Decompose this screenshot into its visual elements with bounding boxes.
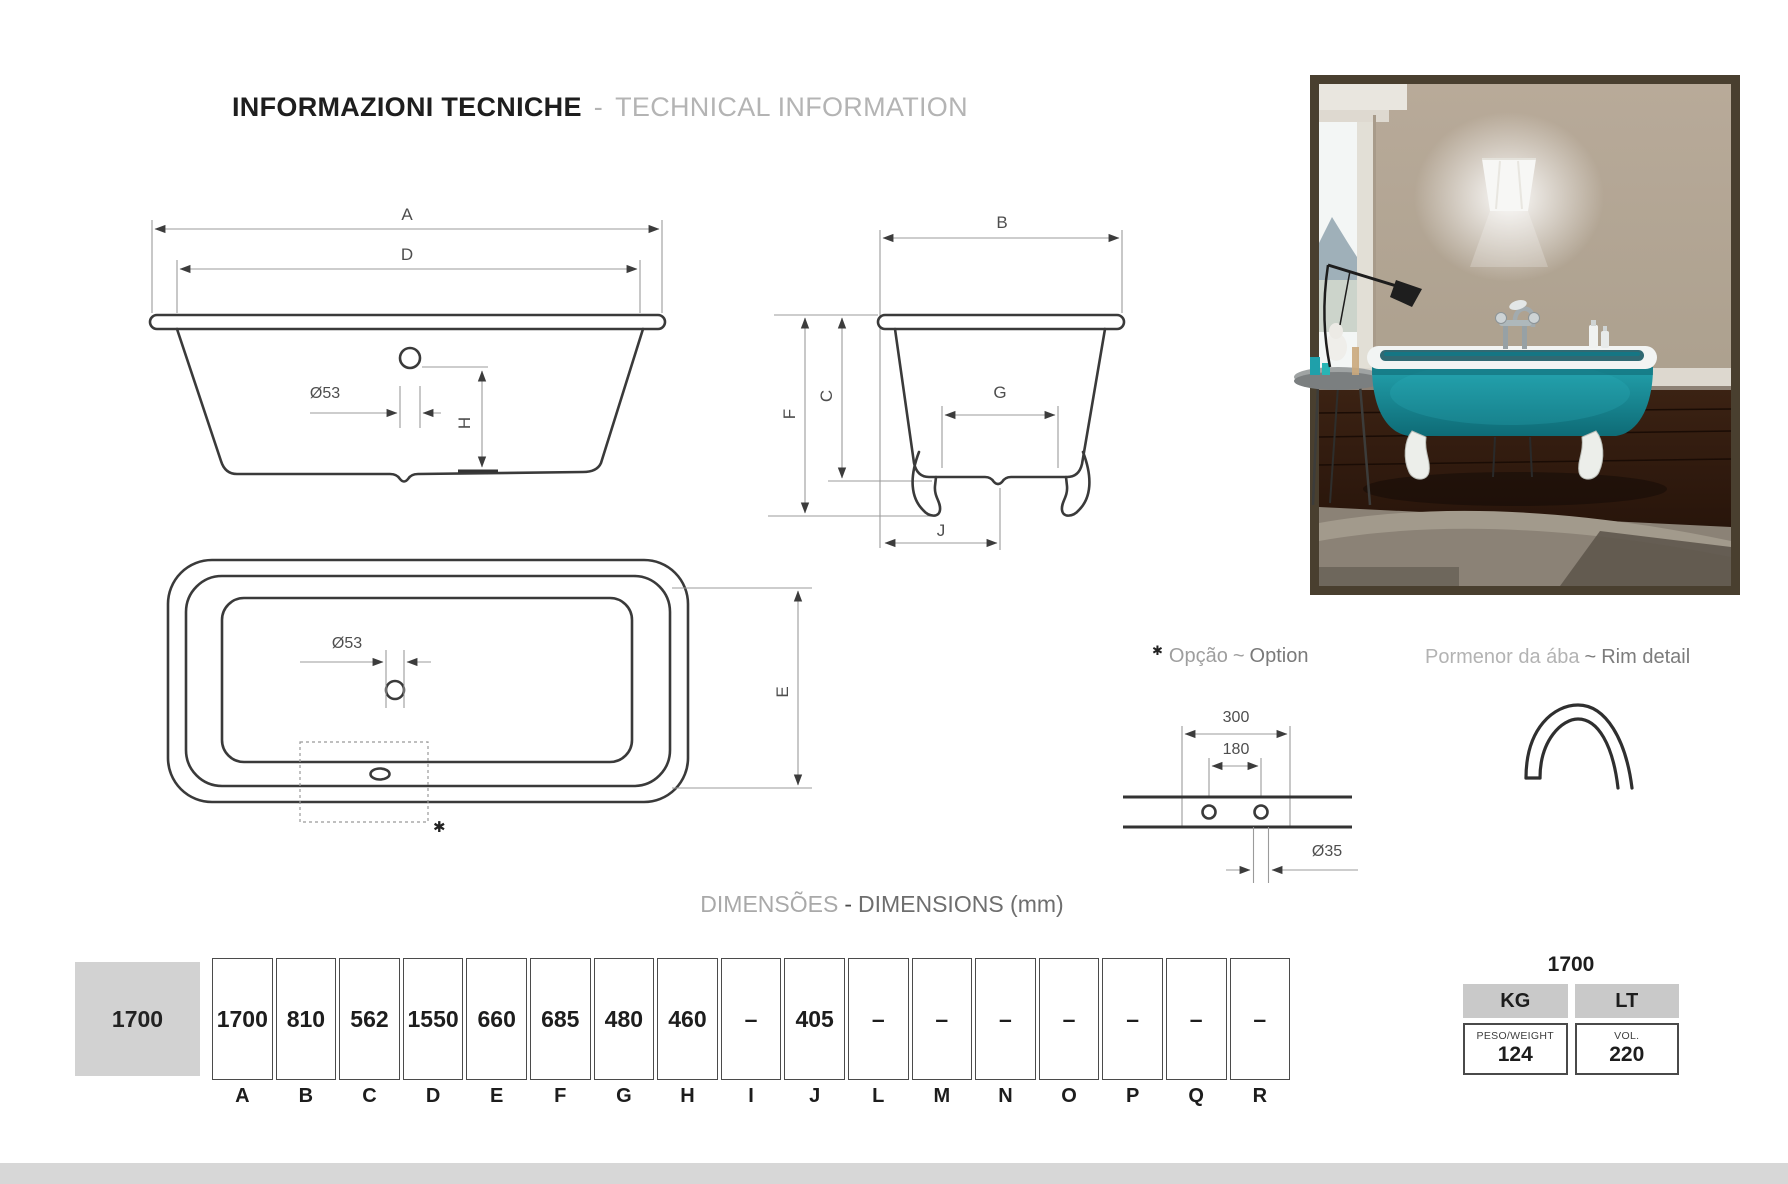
- option-dim-inner: 180: [1223, 741, 1250, 758]
- option-label-separator: ~: [1233, 645, 1245, 667]
- dim-letter: O: [1039, 1083, 1100, 1109]
- dim-value: –: [721, 958, 782, 1080]
- option-label-en: Option: [1250, 645, 1309, 667]
- catalog-page: INFORMAZIONI TECNICHE-TECHNICAL INFORMAT…: [0, 0, 1788, 1184]
- tub-rim-end: [878, 315, 1124, 329]
- dim-value: 810: [276, 958, 337, 1080]
- dim-value: 1700: [212, 958, 273, 1080]
- page-title-italian: INFORMAZIONI TECNICHE: [232, 92, 582, 122]
- page-title-separator: -: [594, 92, 603, 122]
- clawfoot-left: [913, 452, 941, 516]
- weight-table-headers: KG LT: [1463, 984, 1679, 1018]
- end-view-drawing: B F C G J: [690, 190, 1150, 565]
- rim-detail-separator: ~: [1585, 646, 1597, 668]
- option-detail-drawing: 300 180 Ø35: [1100, 700, 1400, 895]
- dim-label-g: G: [993, 383, 1006, 402]
- clawfoot-right: [1062, 452, 1090, 516]
- weight-volume-table: 1700 KG LT PESO/WEIGHT 124 VOL. 220: [1463, 953, 1679, 1075]
- photo-foot-right: [1579, 431, 1603, 479]
- page-title: INFORMAZIONI TECNICHE-TECHNICAL INFORMAT…: [232, 92, 968, 123]
- dim-letter: D: [403, 1083, 464, 1109]
- dim-value: 1550: [403, 958, 464, 1080]
- dim-letter: G: [594, 1083, 655, 1109]
- dim-letter: J: [784, 1083, 845, 1109]
- dim-value: 480: [594, 958, 655, 1080]
- tap-hole-right: [1255, 806, 1268, 819]
- dim-letter: E: [466, 1083, 527, 1109]
- dim-letter: C: [339, 1083, 400, 1109]
- volume-value: 220: [1577, 1043, 1678, 1067]
- dim-column-m: –M: [912, 958, 973, 1109]
- drain-diameter-label-plan: Ø53: [332, 635, 362, 652]
- dim-letter: I: [721, 1083, 782, 1109]
- dimensions-title-pt: DIMENSÕES: [700, 891, 838, 917]
- model-size-box: 1700: [75, 962, 200, 1076]
- photo-wall-sconce: [1414, 112, 1604, 282]
- volume-label: VOL.: [1577, 1030, 1678, 1042]
- weight-box: PESO/WEIGHT 124: [1463, 1023, 1568, 1075]
- dim-letter: L: [848, 1083, 909, 1109]
- dim-letter: R: [1230, 1083, 1291, 1109]
- dim-column-f: 685F: [530, 958, 591, 1109]
- drain-hole-plan: [386, 681, 404, 699]
- dim-column-b: 810B: [276, 958, 337, 1109]
- lt-header: LT: [1575, 984, 1680, 1018]
- dim-column-i: –I: [721, 958, 782, 1109]
- dim-value: 562: [339, 958, 400, 1080]
- tub-basin-plan: [222, 598, 632, 762]
- page-bottom-strip: [0, 1163, 1788, 1184]
- kg-header: KG: [1463, 984, 1568, 1018]
- dim-letter: Q: [1166, 1083, 1227, 1109]
- dim-label-c: C: [817, 390, 836, 402]
- weight-value: 124: [1465, 1043, 1566, 1067]
- top-view-drawing: Ø53 ✱ E: [150, 550, 840, 835]
- dim-label-e: E: [773, 686, 792, 697]
- dim-letter: F: [530, 1083, 591, 1109]
- option-label-pt: Opção: [1169, 645, 1228, 667]
- dim-column-d: 1550D: [403, 958, 464, 1109]
- rim-detail-label-pt: Pormenor da ába: [1425, 646, 1580, 668]
- dim-column-o: –O: [1039, 958, 1100, 1109]
- option-label: ✱Opção~Option: [1152, 645, 1308, 668]
- volume-box: VOL. 220: [1575, 1023, 1680, 1075]
- rim-detail-label: Pormenor da ába~Rim detail: [1425, 646, 1690, 669]
- dim-value: 405: [784, 958, 845, 1080]
- dimensions-title-en: DIMENSIONS (mm): [858, 891, 1064, 917]
- dim-value: –: [1166, 958, 1227, 1080]
- dim-letter: A: [212, 1083, 273, 1109]
- tub-rim-profile: [150, 315, 665, 329]
- option-asterisk: ✱: [433, 819, 446, 836]
- dim-label-a: A: [401, 205, 413, 224]
- tub-body-end: [895, 329, 1105, 484]
- dim-value: 660: [466, 958, 527, 1080]
- page-title-english: TECHNICAL INFORMATION: [615, 92, 968, 122]
- dim-value: –: [1039, 958, 1100, 1080]
- weight-table-values: PESO/WEIGHT 124 VOL. 220: [1463, 1023, 1679, 1075]
- option-dim-outer: 300: [1223, 709, 1250, 726]
- dim-value: –: [1230, 958, 1291, 1080]
- dim-label-h: H: [455, 417, 474, 429]
- dim-column-g: 480G: [594, 958, 655, 1109]
- dim-letter: B: [276, 1083, 337, 1109]
- dim-column-e: 660E: [466, 958, 527, 1109]
- dim-value: 460: [657, 958, 718, 1080]
- option-marker: ✱: [1152, 643, 1163, 658]
- side-view-drawing: A D Ø53 H: [120, 180, 700, 525]
- dim-column-p: –P: [1102, 958, 1163, 1109]
- dim-letter: M: [912, 1083, 973, 1109]
- dim-column-r: –R: [1230, 958, 1291, 1109]
- dim-label-b: B: [996, 213, 1007, 232]
- weight-table-title: 1700: [1463, 953, 1679, 977]
- drain-diameter-label: Ø53: [310, 385, 340, 402]
- dim-value: –: [912, 958, 973, 1080]
- dim-value: –: [1102, 958, 1163, 1080]
- tap-hole-left: [1203, 806, 1216, 819]
- dim-column-c: 562C: [339, 958, 400, 1109]
- dim-letter: N: [975, 1083, 1036, 1109]
- dimensions-title: DIMENSÕES-DIMENSIONS (mm): [592, 891, 1172, 918]
- weight-label: PESO/WEIGHT: [1465, 1030, 1566, 1042]
- dim-letter: H: [657, 1083, 718, 1109]
- optional-tap-area: [300, 742, 428, 822]
- dim-column-q: –Q: [1166, 958, 1227, 1109]
- rim-profile-drawing: [1518, 698, 1658, 793]
- dim-label-j: J: [937, 521, 946, 540]
- dim-value: 685: [530, 958, 591, 1080]
- dim-column-h: 460H: [657, 958, 718, 1109]
- rim-detail-label-en: Rim detail: [1601, 646, 1690, 668]
- dim-column-n: –N: [975, 958, 1036, 1109]
- tub-body-profile: [177, 329, 643, 482]
- dim-value: –: [975, 958, 1036, 1080]
- dimensions-title-separator: -: [844, 891, 852, 917]
- overflow-hole-plan: [371, 769, 390, 780]
- dim-column-l: –L: [848, 958, 909, 1109]
- option-hole-diameter: Ø35: [1312, 843, 1342, 860]
- dim-letter: P: [1102, 1083, 1163, 1109]
- dim-label-d: D: [401, 245, 413, 264]
- dim-column-a: 1700A: [212, 958, 273, 1109]
- photo-tub-shadow: [1363, 472, 1667, 506]
- product-photo: [1310, 75, 1740, 595]
- drain-hole: [400, 348, 420, 368]
- dim-value: –: [848, 958, 909, 1080]
- dim-column-j: 405J: [784, 958, 845, 1109]
- photo-foot-left: [1405, 431, 1429, 479]
- dimensions-table: 1700A 810B 562C 1550D 660E 685F 480G 460…: [212, 958, 1290, 1109]
- dim-label-f: F: [780, 409, 799, 419]
